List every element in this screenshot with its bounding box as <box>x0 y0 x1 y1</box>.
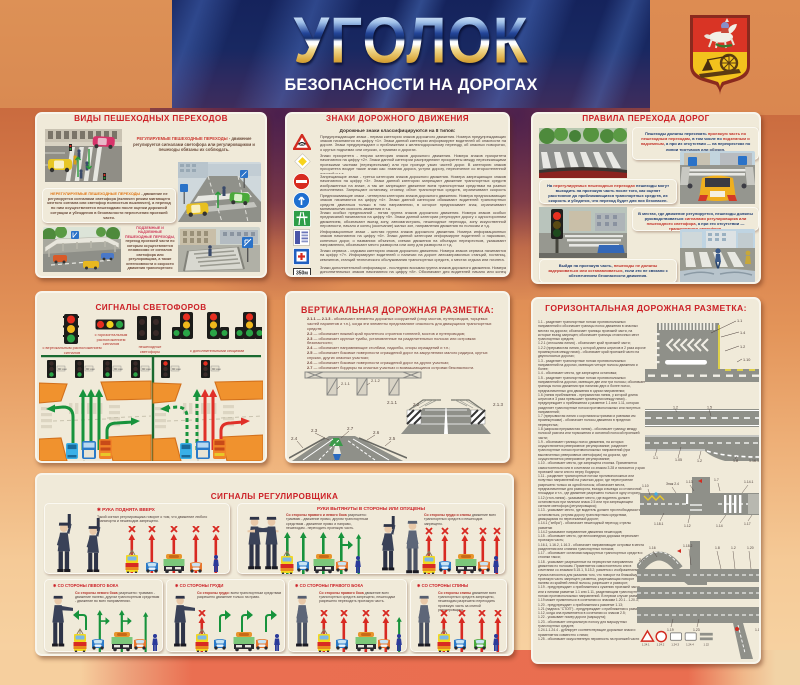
svg-text:1.19: 1.19 <box>667 628 674 632</box>
svg-text:2.7: 2.7 <box>347 426 354 431</box>
svg-text:90 сек: 90 сек <box>212 367 221 371</box>
svg-text:2.2: 2.2 <box>413 402 420 407</box>
svg-text:1.24.4: 1.24.4 <box>686 643 694 647</box>
svg-text:2.1.2: 2.1.2 <box>371 378 381 383</box>
svg-text:1.22: 1.22 <box>704 643 710 647</box>
svg-text:2.4: 2.4 <box>291 436 298 441</box>
svg-text:2.4: 2.4 <box>639 558 644 562</box>
svg-text:350м: 350м <box>295 271 307 277</box>
svg-text:2.6: 2.6 <box>373 430 380 435</box>
svg-text:2.3: 2.3 <box>311 428 318 433</box>
svg-text:1.2: 1.2 <box>731 546 736 550</box>
svg-text:90 сек: 90 сек <box>58 367 67 371</box>
svg-text:Знак 2.4: Знак 2.4 <box>666 482 679 486</box>
svg-text:1.14.1: 1.14.1 <box>744 480 754 484</box>
svg-text:1.13: 1.13 <box>686 480 693 484</box>
svg-text:1.8: 1.8 <box>733 459 738 463</box>
svg-text:1.24.1: 1.24.1 <box>642 643 650 647</box>
svg-text:1.14: 1.14 <box>716 524 723 528</box>
svg-text:1.10: 1.10 <box>642 484 649 488</box>
svg-text:90 сек: 90 сек <box>172 367 181 371</box>
svg-text:2.1.3: 2.1.3 <box>493 402 504 407</box>
svg-text:1.20: 1.20 <box>747 546 754 550</box>
svg-text:2.5: 2.5 <box>389 436 396 441</box>
svg-text:2.1.1: 2.1.1 <box>387 400 398 405</box>
svg-text:1.5: 1.5 <box>707 405 712 409</box>
svg-text:1.7: 1.7 <box>714 478 719 482</box>
svg-text:1.1: 1.1 <box>653 456 658 460</box>
svg-text:1.2: 1.2 <box>673 405 678 409</box>
svg-text:1.17: 1.17 <box>744 522 751 526</box>
svg-text:1.2: 1.2 <box>740 345 745 349</box>
svg-text:1.8: 1.8 <box>715 546 720 550</box>
svg-text:1.4: 1.4 <box>740 331 745 335</box>
svg-text:90 сек: 90 сек <box>114 367 123 371</box>
svg-text:1.12: 1.12 <box>684 524 691 528</box>
svg-text:1.2: 1.2 <box>697 459 702 463</box>
svg-text:1.10: 1.10 <box>743 358 750 362</box>
svg-text:1.16: 1.16 <box>649 546 656 550</box>
svg-text:90 сек: 90 сек <box>142 367 151 371</box>
svg-text:1.16.1: 1.16.1 <box>749 459 759 463</box>
svg-text:2.1.1: 2.1.1 <box>341 381 351 386</box>
svg-text:90 сек: 90 сек <box>86 367 95 371</box>
svg-text:1.1: 1.1 <box>737 319 742 323</box>
svg-text:1.18.2: 1.18.2 <box>683 544 693 548</box>
svg-text:1.05: 1.05 <box>675 458 682 462</box>
svg-text:1.18.1: 1.18.1 <box>654 522 664 526</box>
svg-text:1.24.2: 1.24.2 <box>657 643 665 647</box>
svg-text:1.23: 1.23 <box>693 628 700 632</box>
svg-text:1.16.3: 1.16.3 <box>755 628 761 632</box>
svg-text:1.24.3: 1.24.3 <box>671 643 679 647</box>
